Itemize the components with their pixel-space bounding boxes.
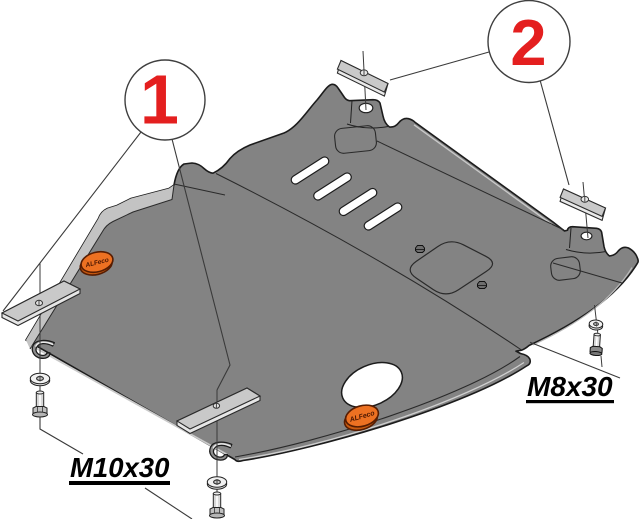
- svg-text:M10x30: M10x30: [70, 452, 170, 483]
- svg-text:M8x30: M8x30: [527, 371, 613, 402]
- svg-text:1: 1: [140, 61, 179, 139]
- svg-text:2: 2: [510, 6, 546, 79]
